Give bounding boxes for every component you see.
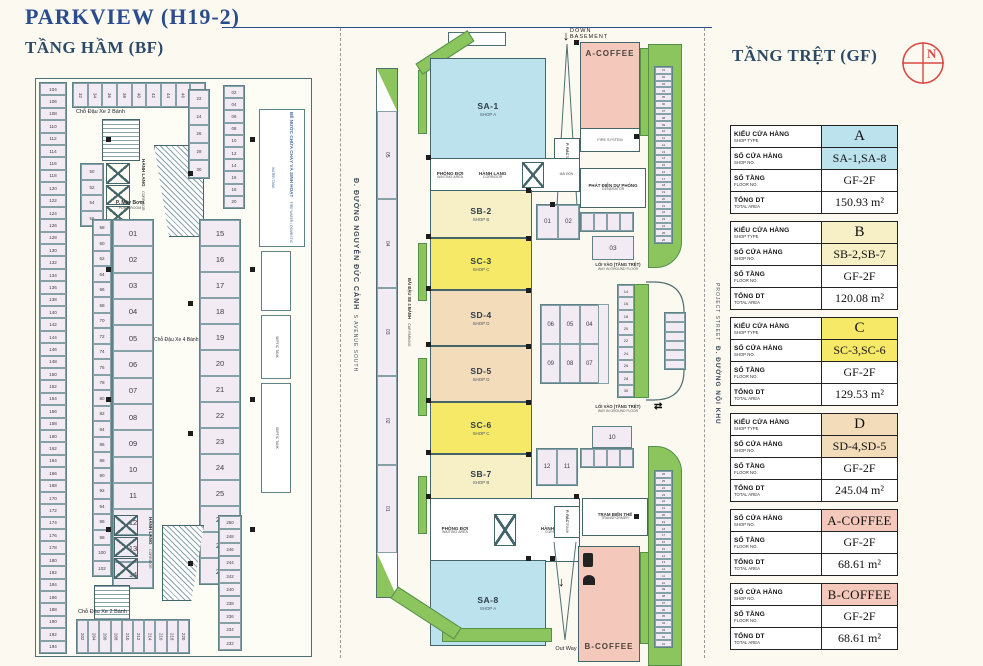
bf-left-stall-ladder: 1041061081101121141161181201221241261281… xyxy=(39,82,67,654)
parking-stall: 124 xyxy=(40,207,66,219)
legend-label-cell: SỐ CỬA HÀNG SHOP NO. xyxy=(731,340,822,361)
parking-stall: 24 xyxy=(655,223,672,230)
legend-row: SỐ CỬA HÀNG SHOP NO. SA-1,SA-8 xyxy=(731,147,897,169)
legend-label: SỐ TẦNG xyxy=(734,271,818,278)
waiting-en: WAITING AREA xyxy=(442,531,469,535)
toilet-fixture xyxy=(583,575,595,585)
parking-stall: 142 xyxy=(40,318,66,330)
column-marker xyxy=(550,556,555,561)
legend-row: TỔNG DT TOTAL AREA 150.93 m² xyxy=(731,191,897,213)
pump-room-label: P. Máy Bơm PUMP ROOM xyxy=(88,201,172,210)
way-in-label-1: LỐI VÀO (TẦNG TRỆT) WAY IN GROUND FLOOR xyxy=(584,263,652,271)
legend-value: GF-2F xyxy=(822,266,897,287)
shop-sc3: SC-3 SHOP C xyxy=(430,238,532,290)
parking-stall: 08 xyxy=(655,114,672,121)
legend-label-cell: TỔNG DT TOTAL AREA xyxy=(731,480,822,501)
parking-stall: 26 xyxy=(655,471,672,478)
parking-stall: 188 xyxy=(40,603,66,615)
parking-stall: 140 xyxy=(40,306,66,318)
parking-stall: 108 xyxy=(40,108,66,120)
car-stall: 03 xyxy=(377,288,397,376)
column-marker xyxy=(526,400,531,405)
parking-stall: 100 xyxy=(93,545,111,560)
out-arrow-icon: ↓ xyxy=(558,574,565,589)
green-strip xyxy=(418,358,427,416)
legend-label: SỐ TẦNG xyxy=(734,611,818,618)
elevator-icon xyxy=(114,537,138,558)
parking-stall: 150 xyxy=(40,368,66,380)
car-stall: 06 xyxy=(113,351,153,377)
parking-stall: 50 xyxy=(81,164,103,180)
parking-stall xyxy=(620,449,633,467)
road-left-en: S AVENUE SOUTH xyxy=(352,315,358,373)
column-marker xyxy=(188,561,193,566)
legend-row: SỐ TẦNG FLOOR NO. GF-2F xyxy=(731,169,897,191)
trash-room-lower: P. RÁCTRASH xyxy=(554,506,580,538)
shop-name: B-COFFEE xyxy=(585,642,634,651)
street-parking-stalls: 0504030201 xyxy=(377,111,397,553)
legend-label: SỐ TẦNG xyxy=(734,175,818,182)
gf-right-bottom-ladder: 2625242322212019181716151413121110090807… xyxy=(654,470,673,648)
legend-label-cell: SỐ CỬA HÀNG SHOP NO. xyxy=(731,244,822,265)
road-centerline-right xyxy=(704,28,705,658)
gf-stall-03: 03 xyxy=(592,236,634,260)
car-stall: 22 xyxy=(200,402,240,428)
shop-name: SB-7 xyxy=(470,469,491,479)
parking-stall: 26 xyxy=(618,360,634,372)
parking-stall: 38 xyxy=(117,83,132,107)
legend-value: 150.93 m² xyxy=(822,192,897,213)
floorplan-sheet: { "page": {"title": "PARKVIEW (H19-2)", … xyxy=(0,0,983,659)
parking-stall: 126 xyxy=(40,219,66,231)
basement-label: BASEMENT xyxy=(570,34,634,40)
parking-stall: 16 xyxy=(224,171,244,183)
parking-stall xyxy=(594,449,607,467)
parking-stall: 07 xyxy=(655,108,672,115)
parking-stall: 114 xyxy=(40,145,66,157)
column-marker xyxy=(526,556,531,561)
legend-row: SỐ CỬA HÀNG SHOP NO. SB-2,SB-7 xyxy=(731,243,897,265)
shop-sublabel: SHOP C xyxy=(473,267,490,272)
parking-stall: 11 xyxy=(557,449,577,485)
parking-stall: 12 xyxy=(655,566,672,573)
column-marker xyxy=(426,494,431,499)
legend-label: TỔNG DT xyxy=(734,197,818,204)
car-parking-label: Chỗ Đậu Xe 4 Bánh xyxy=(154,337,200,343)
legend-table-type-c: KIỂU CỬA HÀNG SHOP TYPE C SỐ CỬA HÀNG SH… xyxy=(730,317,898,406)
legend-label: TỔNG DT xyxy=(734,633,818,640)
legend-row: TỔNG DT TOTAL AREA 129.53 m² xyxy=(731,383,897,405)
bf-elevator-bank-bottom xyxy=(114,515,138,579)
parking-stall: 72 xyxy=(93,328,111,343)
legend-value: 129.53 m² xyxy=(822,384,897,405)
parking-stall: 216 xyxy=(155,620,166,653)
parking-stall: 01 xyxy=(655,67,672,74)
legend-sublabel: SHOP NO. xyxy=(734,522,818,527)
parking-stall: 214 xyxy=(144,620,155,653)
legend-sublabel: FLOOR NO. xyxy=(734,182,818,187)
way-in-label-2: LỐI VÀO (TẦNG TRỆT) WAY IN GROUND FLOOR xyxy=(584,405,652,413)
legend-table-b-coffee: SỐ CỬA HÀNG SHOP NO. B-COFFEE SỐ TẦNG FL… xyxy=(730,583,898,650)
parking-stall: 03 xyxy=(655,81,672,88)
legend-row: TỔNG DT TOTAL AREA 245.04 m² xyxy=(731,479,897,501)
parking-stall: 04 xyxy=(580,305,599,344)
parking-stall xyxy=(594,213,607,231)
legend-sublabel: SHOP TYPE xyxy=(734,234,818,239)
stall-row: 060504 xyxy=(541,305,599,344)
trash-vn: P. RÁC xyxy=(565,143,569,155)
legend-sublabel: SHOP NO. xyxy=(734,160,818,165)
legend-label: TỔNG DT xyxy=(734,389,818,396)
column-marker xyxy=(526,288,531,293)
parking-stall: 11 xyxy=(655,135,672,142)
gf-mid-stall-edge xyxy=(598,304,609,384)
parking-stall: 164 xyxy=(40,455,66,467)
parking-stall: 22 xyxy=(189,90,209,108)
waiting-area-label: PHÒNG ĐỢI WAITING AREA xyxy=(437,171,464,180)
column-marker xyxy=(426,450,431,455)
parking-stall: 206 xyxy=(99,620,110,653)
legend-table-type-a: KIỂU CỬA HÀNG SHOP TYPE A SỐ CỬA HÀNG SH… xyxy=(730,125,898,214)
parking-stall: 18 xyxy=(224,184,244,196)
road-left-vn: Đ. ĐƯỜNG NGUYỄN ĐỨC CẢNH xyxy=(352,178,359,310)
legend-label-cell: KIỂU CỬA HÀNG SHOP TYPE xyxy=(731,318,822,339)
legend-label-cell: KIỂU CỬA HÀNG SHOP TYPE xyxy=(731,414,822,435)
parking-stall: 130 xyxy=(40,244,66,256)
legend-value: GF-2F xyxy=(822,362,897,383)
parking-stall xyxy=(607,449,620,467)
column-marker xyxy=(426,234,431,239)
parking-stall: 02 xyxy=(655,633,672,640)
legend-value: SC-3,SC-6 xyxy=(822,340,897,361)
parking-stall: 146 xyxy=(40,343,66,355)
parking-stall: 180 xyxy=(40,554,66,566)
driveway-stall-block xyxy=(664,312,686,370)
column-marker xyxy=(550,202,555,207)
parking-stall: 244 xyxy=(219,556,241,569)
generator-en: GENERATOR xyxy=(602,188,624,192)
car-stall: 18 xyxy=(200,298,240,324)
utility-room xyxy=(261,251,291,311)
parking-stall: 178 xyxy=(40,541,66,553)
legend-sublabel: FLOOR NO. xyxy=(734,618,818,623)
legend-label: SỐ CỬA HÀNG xyxy=(734,345,818,352)
ramp-out xyxy=(551,542,579,642)
legend-row: KIỂU CỬA HÀNG SHOP TYPE B xyxy=(731,222,897,243)
parking-stall: 132 xyxy=(40,256,66,268)
legend-label-cell: SỐ TẦNG FLOOR NO. xyxy=(731,532,822,553)
parking-stall: 34 xyxy=(88,83,103,107)
legend-label: KIỂU CỬA HÀNG xyxy=(734,419,818,426)
parking-stall: 120 xyxy=(40,182,66,194)
legend-label-cell: SỐ CỬA HÀNG SHOP NO. xyxy=(731,584,822,605)
legend-row: SỐ TẦNG FLOOR NO. GF-2F xyxy=(731,457,897,479)
bf-elevator-bank-top xyxy=(106,163,130,227)
trash-en: TRASH xyxy=(565,523,569,534)
shop-b-coffee: B-COFFEE xyxy=(578,546,640,662)
generator-room: PHÁT ĐIỆN DỰ PHÒNG GENERATOR xyxy=(580,168,646,208)
parking-stall: 116 xyxy=(40,157,66,169)
legend-label-cell: SỐ CỬA HÀNG SHOP NO. xyxy=(731,436,822,457)
parking-stall: 30 xyxy=(618,385,634,397)
legend-sublabel: SHOP NO. xyxy=(734,596,818,601)
parking-stall: 84 xyxy=(93,421,111,436)
parking-stall: 04 xyxy=(655,620,672,627)
parking-stall: 168 xyxy=(40,480,66,492)
parking-stall: 14 xyxy=(655,552,672,559)
column-marker xyxy=(426,342,431,347)
corridor-label: HÀNH LANG xyxy=(141,159,146,187)
bf-mid-top-ladder: 2224262830 xyxy=(188,89,210,179)
elevator-icon xyxy=(522,162,544,188)
shop-name: A-COFFEE xyxy=(586,49,635,58)
parking-stall: 20 xyxy=(655,196,672,203)
parking-stall xyxy=(620,213,633,231)
road-centerline-left xyxy=(340,28,341,658)
legend-label: KIỂU CỬA HÀNG xyxy=(734,131,818,138)
parking-stall: 174 xyxy=(40,517,66,529)
parking-stall: 82 xyxy=(93,406,111,421)
legend-sublabel: SHOP NO. xyxy=(734,448,818,453)
parking-stall: 118 xyxy=(40,170,66,182)
shop-sublabel: SHOP D xyxy=(473,377,490,382)
parking-stall: 09 xyxy=(655,586,672,593)
parking-stall: 23 xyxy=(655,491,672,498)
parking-stall: 128 xyxy=(40,232,66,244)
car-stall: 01 xyxy=(377,465,397,553)
parking-stall: 148 xyxy=(40,356,66,368)
car-stall: 25 xyxy=(200,480,240,506)
column-marker xyxy=(426,398,431,403)
shop-sc6: SC-6 SHOP C xyxy=(430,402,532,454)
legend-row: KIỂU CỬA HÀNG SHOP TYPE A xyxy=(731,126,897,147)
legend-label-cell: SỐ CỬA HÀNG SHOP NO. xyxy=(731,510,822,531)
gf-right-mid-ladder: 141618202224262830 xyxy=(617,284,635,398)
parking-stall: 01 xyxy=(537,205,558,239)
bf-cluster-stalls: 50525456 xyxy=(80,163,104,227)
compass-n-letter: N xyxy=(927,46,937,61)
shop-name: SC-6 xyxy=(470,420,491,430)
stall-row: 090807 xyxy=(541,344,599,383)
legend-row: SỐ CỬA HÀNG SHOP NO. SC-3,SC-6 xyxy=(731,339,897,361)
column-marker xyxy=(526,452,531,457)
legend-value: GF-2F xyxy=(822,532,897,553)
car-stall: 24 xyxy=(200,454,240,480)
column-marker xyxy=(188,301,193,306)
car-stall: 05 xyxy=(377,111,397,199)
fire-system-label: FIRE SYSTEM xyxy=(597,138,622,142)
parking-stall: 03 xyxy=(655,627,672,634)
septic-label: SEPTIC TANK xyxy=(274,336,278,358)
column-marker xyxy=(574,494,579,499)
car-stall: 07 xyxy=(113,378,153,404)
parking-stall: 58 xyxy=(93,220,111,235)
elevator-icon xyxy=(494,514,516,546)
parking-stall: 160 xyxy=(40,430,66,442)
page-title: PARKVIEW (H19-2) xyxy=(25,4,240,30)
parking-stall: 06 xyxy=(655,606,672,613)
parking-stall: 05 xyxy=(655,613,672,620)
legend-label-cell: SỐ TẦNG FLOOR NO. xyxy=(731,606,822,627)
car-stall: 09 xyxy=(113,430,153,456)
elevator-icon xyxy=(114,558,138,579)
legend-sublabel: TOTAL AREA xyxy=(734,396,818,401)
basement-plan-title: TẦNG HẦM (BF) xyxy=(25,38,164,58)
legend-label-cell: TỔNG DT TOTAL AREA xyxy=(731,288,822,309)
parking-stall: 04 xyxy=(655,87,672,94)
shop-name: SA-1 xyxy=(477,101,498,111)
car-stall: 04 xyxy=(377,199,397,287)
parking-stall: 90 xyxy=(93,468,111,483)
shop-sa1: SA-1 SHOP A xyxy=(430,58,546,160)
gf-stall-pair-top: 0102 xyxy=(536,204,580,240)
legend-label-cell: TỔNG DT TOTAL AREA xyxy=(731,192,822,213)
column-marker xyxy=(188,171,193,176)
fire-water-tank: BỂ NƯỚC CHỨA CHÁY VÀ SINH HOẠT FIRE WATE… xyxy=(259,109,305,247)
green-strip xyxy=(418,243,427,301)
parking-stall: 242 xyxy=(219,570,241,583)
legend-row: SỐ CỬA HÀNG SHOP NO. B-COFFEE xyxy=(731,584,897,605)
parking-stall: 14 xyxy=(618,285,634,297)
parking-stall: 70 xyxy=(93,313,111,328)
column-marker xyxy=(250,137,255,142)
legend-row: SỐ TẦNG FLOOR NO. GF-2F xyxy=(731,605,897,627)
legend-label: SỐ CỬA HÀNG xyxy=(734,589,818,596)
legend-table-type-d: KIỂU CỬA HÀNG SHOP TYPE D SỐ CỬA HÀNG SH… xyxy=(730,413,898,502)
column-marker xyxy=(250,267,255,272)
parking-stall: 24 xyxy=(189,108,209,126)
legend-value: SD-4,SD-5 xyxy=(822,436,897,457)
parking-stall: 12 xyxy=(224,147,244,159)
legend-sublabel: SHOP NO. xyxy=(734,352,818,357)
parking-stall: 24 xyxy=(655,485,672,492)
parking-stall: 218 xyxy=(167,620,178,653)
column-marker xyxy=(426,155,431,160)
legend-value: C xyxy=(822,318,897,339)
legend-panel: KIỂU CỬA HÀNG SHOP TYPE A SỐ CỬA HÀNG SH… xyxy=(730,125,900,655)
shop-sublabel: SHOP A xyxy=(480,606,496,611)
parking-stall: 04 xyxy=(224,98,244,110)
parking-stall: 28 xyxy=(189,143,209,161)
parking-stall: 162 xyxy=(40,442,66,454)
carpark-vn: BÃI ĐẬU XE 4 BÁNH xyxy=(407,278,412,319)
parking-stall: 250 xyxy=(219,516,241,529)
legend-label-cell: TỔNG DT TOTAL AREA xyxy=(731,554,822,575)
corridor-en: CORRIDOR xyxy=(479,176,507,180)
legend-row: KIỂU CỬA HÀNG SHOP TYPE D xyxy=(731,414,897,435)
way-in-en: WAY IN GROUND FLOOR xyxy=(584,268,652,272)
legend-label-cell: SỐ CỬA HÀNG SHOP NO. xyxy=(731,148,822,169)
parking-stall: 14 xyxy=(224,159,244,171)
parking-stall: 02 xyxy=(655,74,672,81)
parking-stall: 246 xyxy=(219,543,241,556)
parking-stall: 104 xyxy=(40,83,66,95)
parking-stall: 22 xyxy=(655,498,672,505)
legend-sublabel: SHOP TYPE xyxy=(734,330,818,335)
legend-value: 68.61 m² xyxy=(822,554,897,575)
carpark-en: CAR PARKING xyxy=(407,323,411,346)
parking-stall: 18 xyxy=(655,182,672,189)
shop-sd4: SD-4 SHOP D xyxy=(430,290,532,346)
parking-stall: 112 xyxy=(40,133,66,145)
parking-stall: 166 xyxy=(40,467,66,479)
parking-stall: 13 xyxy=(655,148,672,155)
parking-stall: 01 xyxy=(655,640,672,647)
legend-row: TỔNG DT TOTAL AREA 68.61 m² xyxy=(731,627,897,649)
column-marker xyxy=(250,527,255,532)
parking-stall: 136 xyxy=(40,281,66,293)
column-marker xyxy=(634,134,639,139)
parking-stall: 10 xyxy=(655,579,672,586)
parking-stall: 66 xyxy=(93,282,111,297)
parking-stall: 106 xyxy=(40,95,66,107)
parking-stall: 42 xyxy=(146,83,161,107)
septic-tank-1: SEPTIC TANK xyxy=(261,315,291,379)
car-stall: 03 xyxy=(113,273,153,299)
car-stall: 10 xyxy=(113,457,153,483)
legend-row: SỐ TẦNG FLOOR NO. GF-2F xyxy=(731,531,897,553)
legend-value: A-COFFEE xyxy=(822,510,897,531)
bike-parking-label-top: Chỗ Đậu Xe 2 Bánh xyxy=(76,109,125,115)
parking-stall: 10 xyxy=(655,128,672,135)
parking-stall: 220 xyxy=(178,620,189,653)
parking-stall: 172 xyxy=(40,504,66,516)
parking-stall: 17 xyxy=(655,175,672,182)
legend-value: GF-2F xyxy=(822,458,897,479)
canopy-label: MÁI ĐÓN xyxy=(560,173,574,177)
legend-label: SỐ CỬA HÀNG xyxy=(734,515,818,522)
parking-stall: 212 xyxy=(133,620,144,653)
shop-sublabel: SHOP B xyxy=(473,217,490,222)
car-stall: 05 xyxy=(113,325,153,351)
legend-label: SỐ TẦNG xyxy=(734,463,818,470)
legend-label: SỐ CỬA HÀNG xyxy=(734,153,818,160)
parking-stall: 186 xyxy=(40,591,66,603)
legend-sublabel: FLOOR NO. xyxy=(734,544,818,549)
parking-stall: 110 xyxy=(40,120,66,132)
street-parking-strip: 0504030201 xyxy=(376,68,398,598)
column-marker xyxy=(106,527,111,532)
parking-stall: 08 xyxy=(224,123,244,135)
parking-stall: 26 xyxy=(655,236,672,243)
parking-stall: 144 xyxy=(40,331,66,343)
parking-stall: 25 xyxy=(655,478,672,485)
gf-small-stalls xyxy=(580,448,634,468)
legend-label: SỐ CỬA HÀNG xyxy=(734,249,818,256)
parking-stall xyxy=(665,332,685,341)
legend-label-cell: KIỂU CỬA HÀNG SHOP TYPE xyxy=(731,222,822,243)
parking-stall: 24 xyxy=(618,347,634,359)
legend-value: SB-2,SB-7 xyxy=(822,244,897,265)
legend-label-cell: KIỂU CỬA HÀNG SHOP TYPE xyxy=(731,126,822,147)
car-stall: 02 xyxy=(377,376,397,464)
parking-stall: 74 xyxy=(93,344,111,359)
legend-row: KIỂU CỬA HÀNG SHOP TYPE C xyxy=(731,318,897,339)
parking-stall: 152 xyxy=(40,380,66,392)
parking-stall: 154 xyxy=(40,393,66,405)
parking-stall xyxy=(665,350,685,359)
parking-stall: 06 xyxy=(655,101,672,108)
parking-stall: 20 xyxy=(224,196,244,208)
column-marker xyxy=(426,286,431,291)
legend-row: TỔNG DT TOTAL AREA 120.08 m² xyxy=(731,287,897,309)
legend-label: SỐ TẦNG xyxy=(734,367,818,374)
green-strip xyxy=(377,69,397,111)
gf-stall-10: 10 xyxy=(592,426,632,448)
bf-right-top-ladder: 02040608101214161820 xyxy=(223,85,245,209)
upper-core: PHÒNG ĐỢI WAITING AREA HÀNH LANG CORRIDO… xyxy=(430,158,580,192)
parking-stall: 23 xyxy=(655,216,672,223)
